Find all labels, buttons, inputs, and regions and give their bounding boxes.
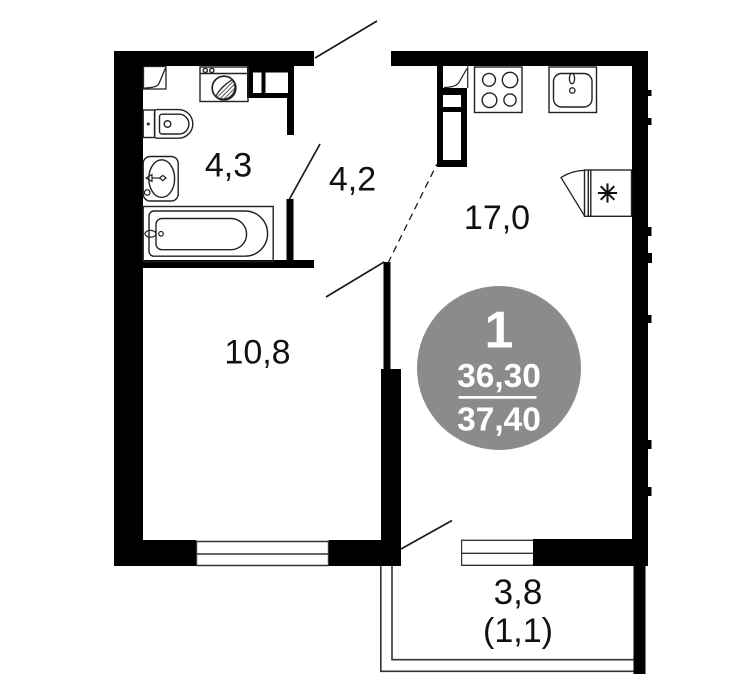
svg-text:(1,1): (1,1) bbox=[483, 612, 553, 650]
svg-text:1: 1 bbox=[485, 302, 514, 360]
svg-text:37,40: 37,40 bbox=[457, 402, 541, 439]
svg-text:10,8: 10,8 bbox=[224, 333, 290, 371]
svg-text:36,30: 36,30 bbox=[457, 358, 541, 395]
svg-text:17,0: 17,0 bbox=[464, 199, 530, 237]
svg-text:4,2: 4,2 bbox=[329, 161, 376, 199]
svg-text:4,3: 4,3 bbox=[205, 146, 252, 184]
svg-text:3,8: 3,8 bbox=[494, 573, 543, 612]
